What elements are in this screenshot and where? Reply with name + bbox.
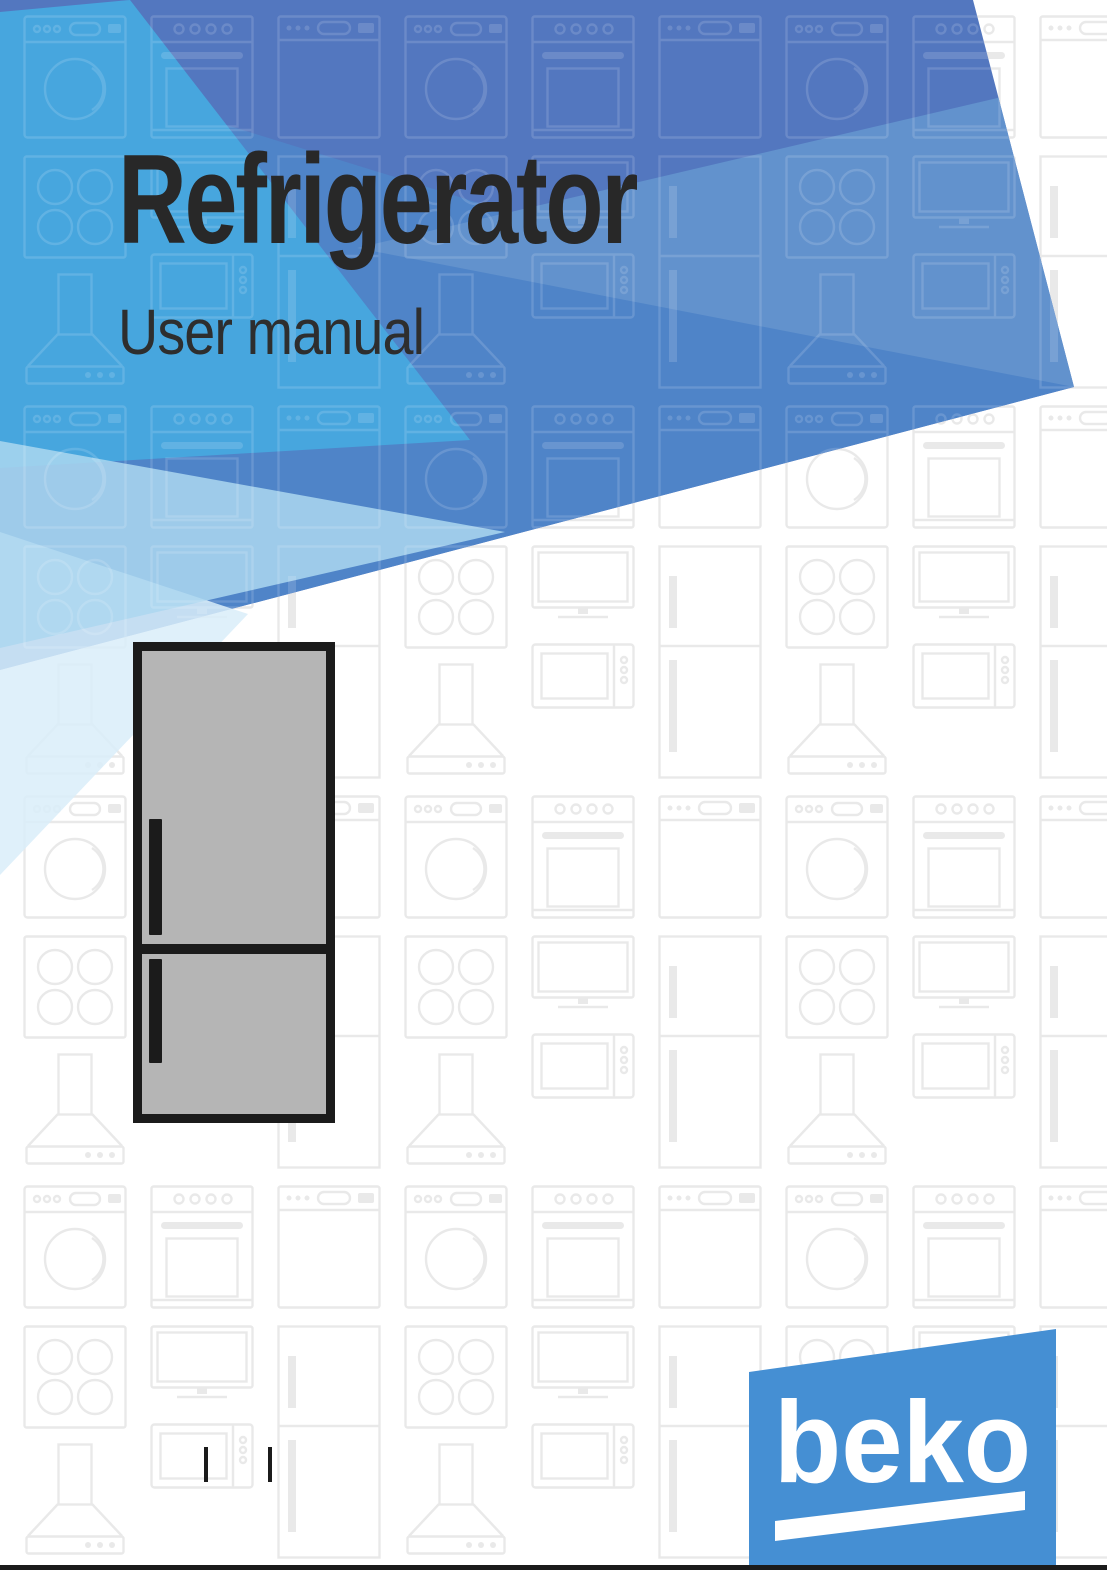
beko-wordmark: beko <box>757 1384 1049 1500</box>
page-bottom-edge-line <box>0 1565 1107 1570</box>
page-title: Refrigerator <box>118 136 636 263</box>
page-subtitle: User manual <box>118 300 424 364</box>
refrigerator-bottom-door-handle <box>149 959 162 1063</box>
registration-mark <box>268 1447 272 1482</box>
refrigerator-top-door-handle <box>149 819 162 935</box>
refrigerator-body <box>138 647 331 1119</box>
registration-mark <box>204 1447 208 1482</box>
manual-cover-page: Refrigerator User manual beko <box>0 0 1107 1570</box>
refrigerator-illustration <box>133 647 335 1119</box>
refrigerator-door-divider <box>133 944 335 954</box>
